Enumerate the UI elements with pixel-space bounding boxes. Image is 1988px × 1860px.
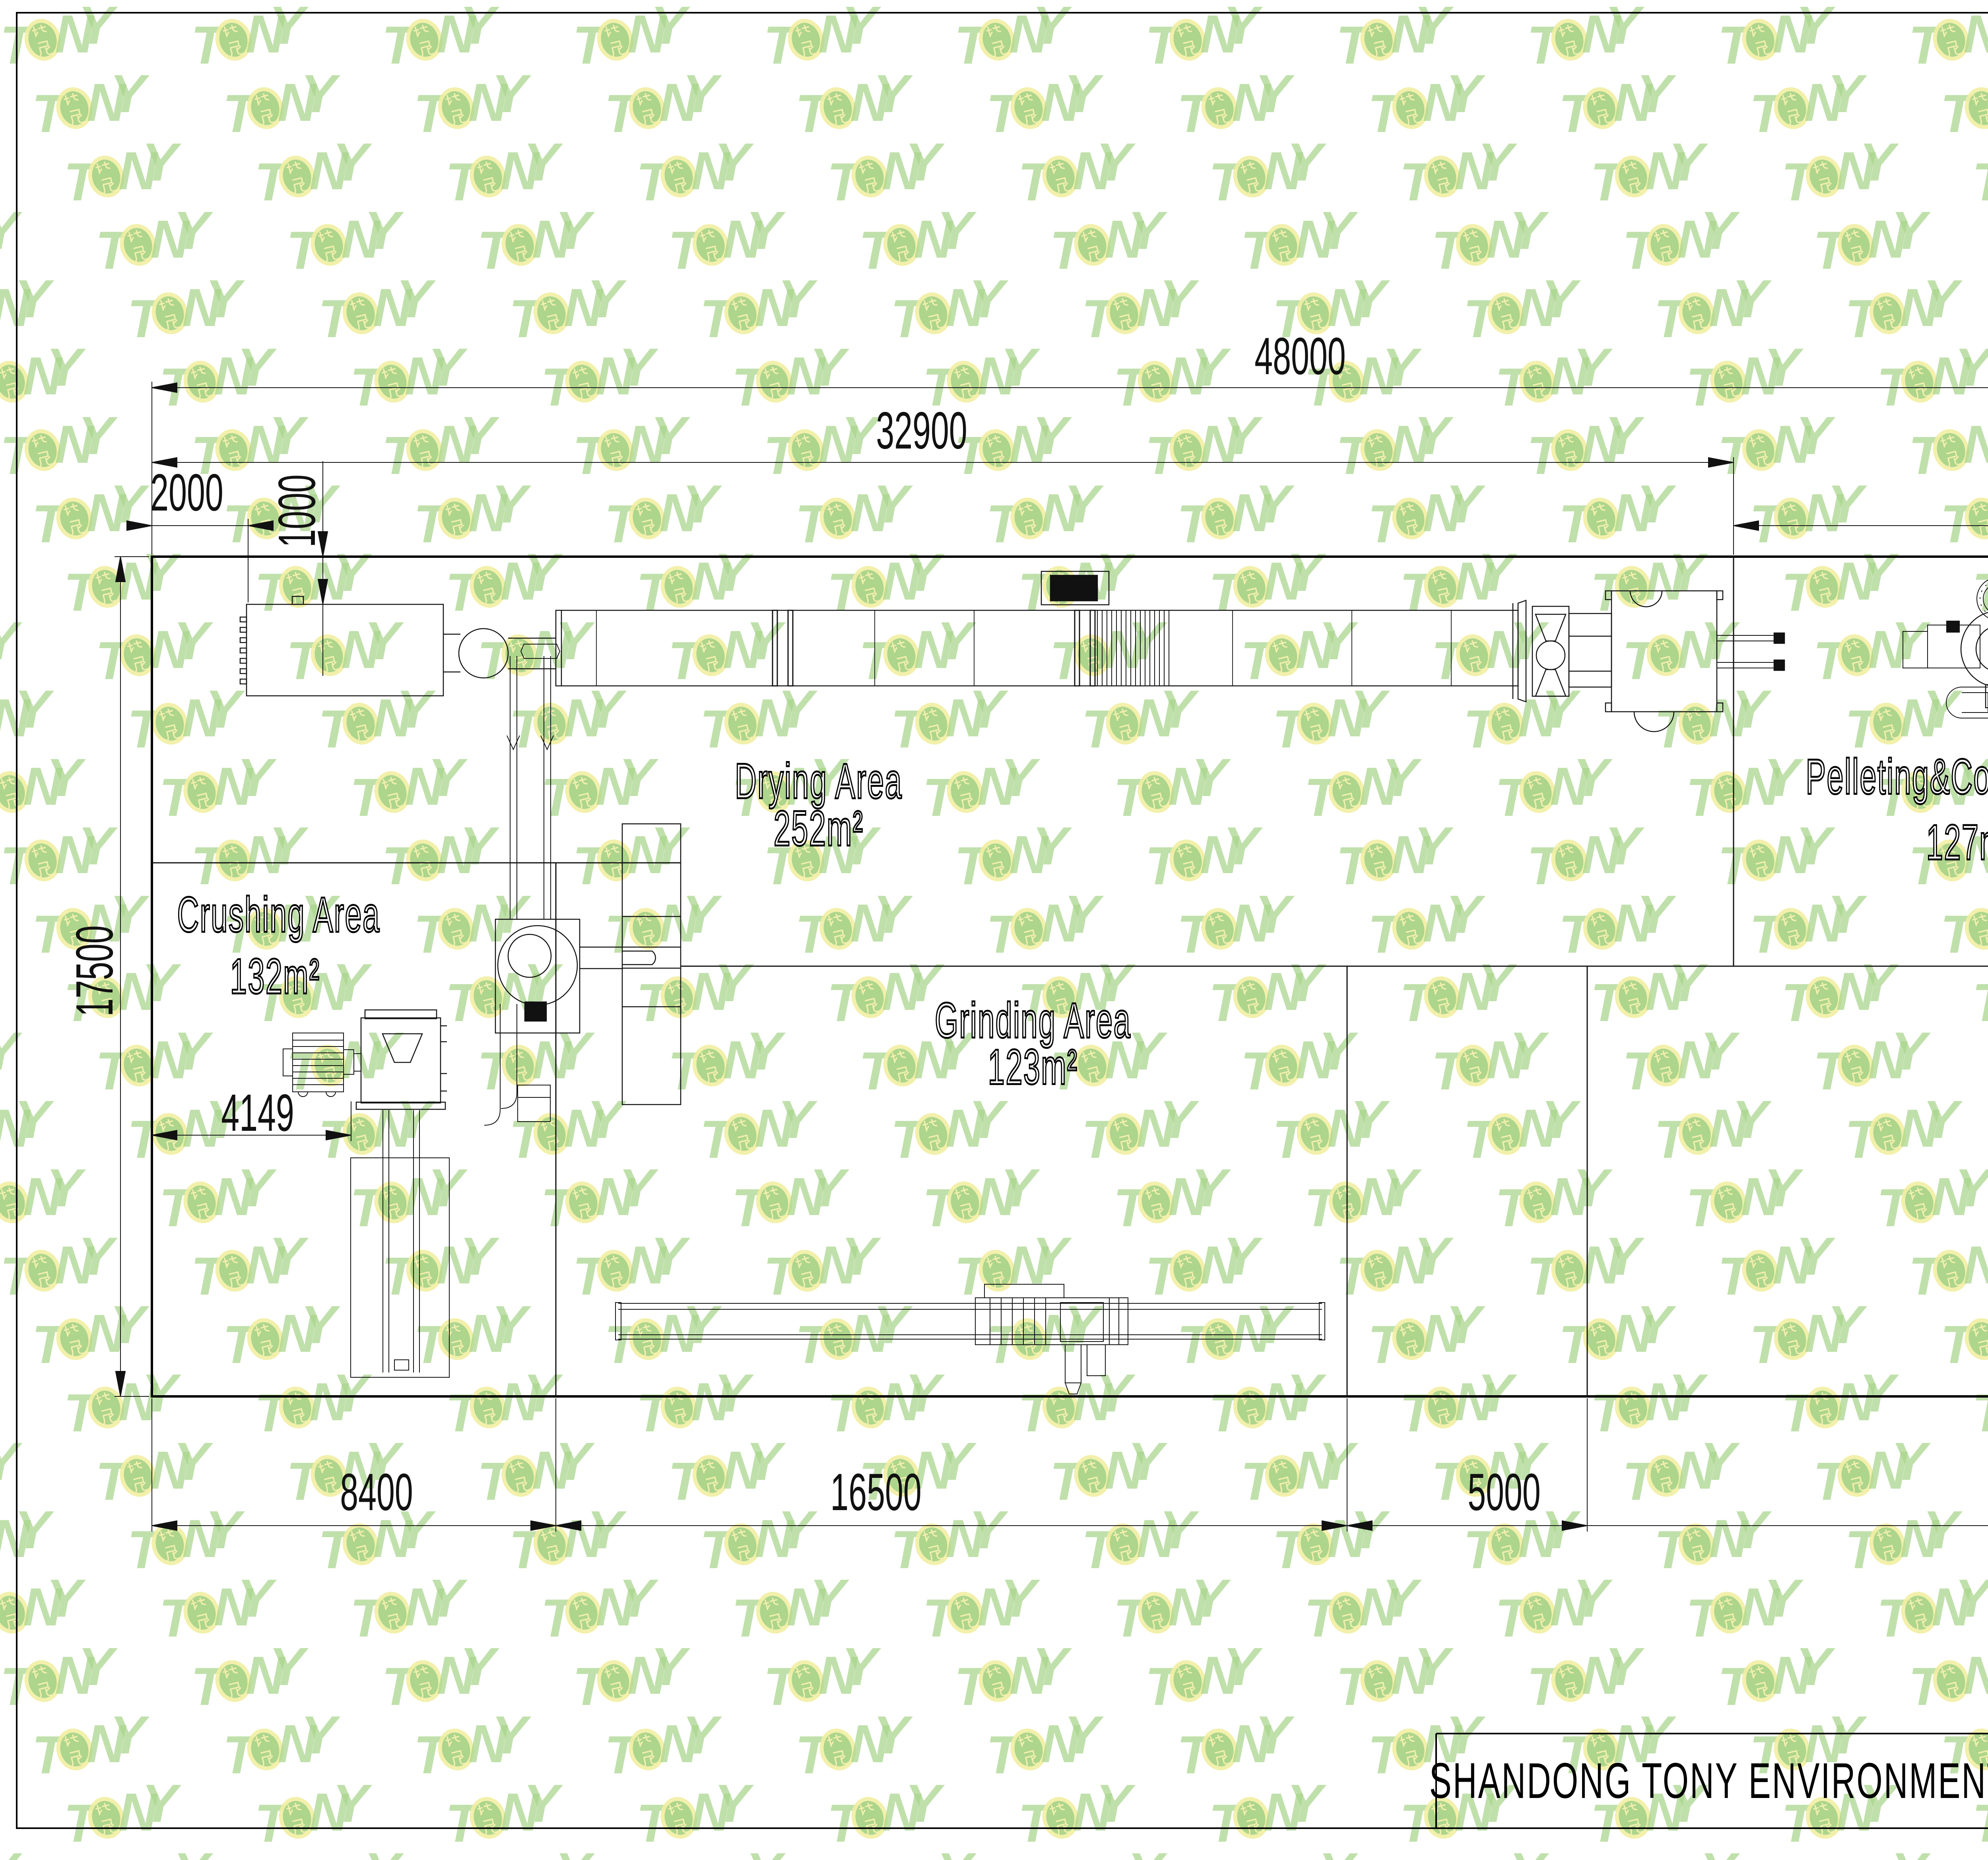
- mill-belt-conveyor: [615, 1303, 1325, 1340]
- dim-corridor-width: 5000: [1468, 1462, 1541, 1522]
- dim-32900-geometry: [152, 457, 1734, 555]
- dim-drying-span: 32900: [876, 400, 967, 460]
- dimension-lines: [115, 382, 1988, 1532]
- label-crushing-size: 132m²: [230, 947, 320, 1005]
- label-pelleting-size: 127m²: [1926, 814, 1988, 871]
- crusher-belt-conveyor: [351, 1110, 449, 1377]
- dim-crushing-width: 8400: [340, 1462, 413, 1522]
- fan-motor: [525, 1002, 546, 1021]
- dim-bottom-chain-geometry: [152, 1398, 1988, 1532]
- label-drying-size: 252m²: [774, 800, 864, 857]
- dim-crusher-span: 4149: [221, 1082, 294, 1143]
- drum-fins: [1097, 610, 1169, 686]
- discharge-hood: [1532, 606, 1611, 696]
- drum-drive-motor: [1041, 571, 1109, 605]
- dim-drum-inset: 1000: [266, 474, 327, 548]
- dim-overall-depth: 17500: [64, 925, 124, 1016]
- dim-overall-width: 48000: [1254, 326, 1345, 386]
- inlet-duct-tower: [507, 644, 560, 919]
- pellet-conveyor: [1946, 684, 1988, 721]
- drawing-sheet: T N Y: [0, 0, 1988, 1860]
- workshop-outline: [152, 557, 1988, 1396]
- airlock-under-fan: [484, 1004, 550, 1125]
- dim-left-inset: 2000: [150, 462, 223, 522]
- rotary-drum-dryer: [556, 600, 1526, 702]
- bag-filter: [580, 824, 681, 1105]
- hot-air-furnace: [1606, 591, 1784, 732]
- dim-48000-geometry: [152, 382, 1988, 555]
- title-company-name: SHANDONG TONY ENVIRONMENTAL PROTECTION S…: [1429, 1752, 1988, 1810]
- dim-grinding-width: 16500: [830, 1462, 921, 1522]
- label-crushing-area: Crushing Area: [177, 886, 381, 943]
- dim-15100-geometry: [1734, 521, 1988, 530]
- pellet-gearbox: [1903, 621, 1980, 668]
- pellet-cyclone: [1977, 577, 1988, 620]
- dim-2000-geometry: [127, 519, 273, 602]
- feed-hopper: [240, 596, 460, 696]
- centrifugal-fan: [495, 919, 580, 1033]
- partition-lines: [152, 557, 1988, 1396]
- crusher: [356, 1010, 447, 1109]
- crusher-motor: [283, 1033, 361, 1097]
- dim-packing-width: 18100: [1986, 1462, 1988, 1522]
- feed-fan: [459, 629, 556, 678]
- label-pelleting-area: Pelleting&Cooling Area: [1806, 748, 1988, 805]
- drum-tyres: [773, 610, 1095, 686]
- label-grinding-size: 123m²: [988, 1038, 1078, 1095]
